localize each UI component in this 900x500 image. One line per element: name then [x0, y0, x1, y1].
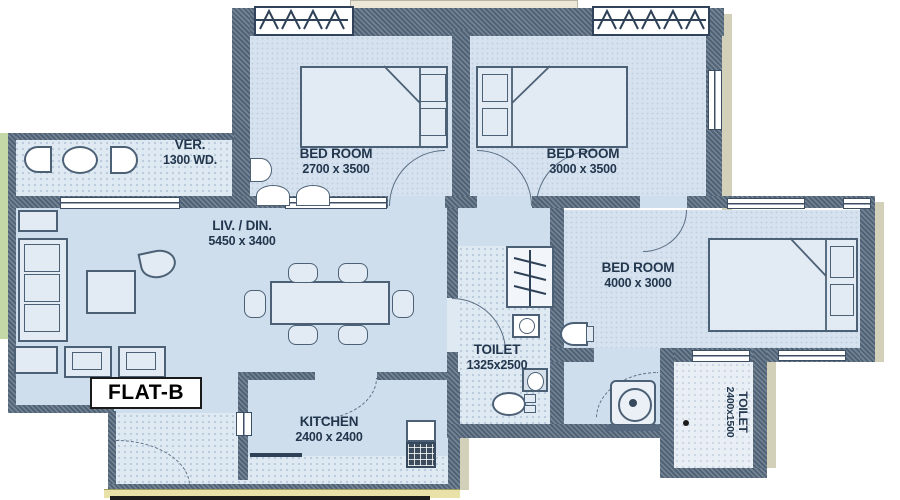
kitchen-sink-icon	[406, 420, 436, 442]
planter-icon	[24, 146, 52, 173]
sofa-cushion	[24, 304, 60, 332]
window-icon	[60, 197, 180, 209]
sofa-cushion	[24, 244, 60, 272]
wall-shadow	[767, 356, 776, 468]
room-label-bedroom-2: BED ROOM 3000 x 3500	[524, 146, 642, 177]
washing-machine-stand	[606, 425, 660, 431]
room-name: LIV. / DIN.	[186, 218, 298, 234]
washing-machine-hub	[629, 399, 637, 407]
room-label-living-dining: LIV. / DIN. 5450 x 3400	[186, 218, 298, 249]
room-label-bedroom-3: BED ROOM 4000 x 3000	[578, 260, 698, 291]
wall	[860, 196, 875, 362]
room-dims: 2400x1500	[723, 360, 735, 464]
wash-basin-icon	[296, 185, 330, 206]
wall	[660, 348, 674, 478]
door-opening	[594, 348, 660, 362]
room-label-toilet-2: TOILET 2400x1500	[694, 360, 750, 464]
room-dims: 4000 x 3000	[578, 276, 698, 291]
room-label-verandah: VER. 1300 WD.	[148, 137, 232, 168]
wash-basin-icon	[492, 392, 526, 416]
side-table-icon	[86, 270, 136, 314]
floor-plan: VER. 1300 WD. BED ROOM 2700 x 3500 BED R…	[0, 0, 900, 500]
room-name: KITCHEN	[268, 414, 390, 430]
chair-icon	[288, 325, 318, 345]
wall	[232, 8, 250, 208]
room-dims: 5450 x 3400	[186, 234, 298, 249]
planter-icon	[110, 146, 138, 174]
room-label-kitchen: KITCHEN 2400 x 2400	[268, 414, 390, 445]
wash-basin-icon	[560, 322, 588, 346]
wall	[660, 468, 767, 478]
pillow-icon	[420, 74, 446, 102]
shower-icon	[506, 246, 554, 308]
casement-window-icon	[592, 6, 710, 36]
room-dims: 3000 x 3500	[524, 162, 642, 177]
tap-icon	[524, 405, 536, 413]
wall	[753, 348, 767, 478]
seat-icon	[14, 346, 58, 374]
wall-shadow	[460, 430, 469, 490]
room-name: TOILET	[444, 342, 550, 358]
room-dims: 2700 x 3500	[278, 162, 394, 177]
armchair-cushion	[126, 352, 156, 370]
window-icon	[708, 70, 722, 130]
window-icon	[778, 350, 846, 361]
wall-shadow	[875, 202, 884, 362]
wall	[550, 348, 594, 362]
room-dims: 2400 x 2400	[268, 430, 390, 445]
planter-icon	[62, 146, 98, 174]
basin-bowl	[519, 318, 535, 334]
wall	[452, 30, 470, 208]
room-label-toilet-1: TOILET 1325x2500	[444, 342, 550, 373]
pillow-icon	[830, 246, 854, 278]
room-name: TOILET	[736, 360, 750, 464]
room-dims: 1325x2500	[444, 358, 550, 373]
window-icon	[843, 198, 871, 209]
wall	[550, 208, 564, 424]
chair-icon	[288, 263, 318, 283]
wall-shadow	[722, 14, 732, 210]
basin-mount	[586, 326, 594, 342]
casement-window-icon	[254, 6, 354, 36]
wash-basin-icon	[256, 185, 290, 206]
sofa-cushion	[24, 274, 60, 302]
room-name: BED ROOM	[578, 260, 698, 276]
kitchen-sink-grid	[406, 442, 436, 468]
kitchen-platform	[250, 453, 302, 457]
door-opening	[640, 196, 687, 208]
wc-bowl	[527, 372, 544, 391]
window-icon	[236, 412, 252, 436]
tap-icon	[524, 394, 536, 403]
drain-point	[683, 420, 689, 426]
pillow-icon	[830, 284, 854, 316]
wash-basin-icon	[250, 158, 272, 182]
chair-icon	[244, 290, 266, 318]
chair-icon	[338, 325, 368, 345]
room-label-bedroom-1: BED ROOM 2700 x 3500	[278, 146, 394, 177]
armchair-cushion	[72, 352, 102, 370]
chair-icon	[392, 290, 414, 318]
flat-label: FLAT-B	[90, 377, 202, 409]
room-dims: 1300 WD.	[148, 153, 232, 168]
wall	[108, 411, 116, 493]
corridor-floor	[458, 208, 552, 246]
seat-icon	[18, 210, 58, 232]
dining-table-icon	[270, 281, 390, 325]
chair-icon	[338, 263, 368, 283]
bottom-bar	[110, 496, 430, 500]
window-icon	[727, 198, 805, 209]
pillow-icon	[420, 108, 446, 136]
pillow-icon	[482, 74, 508, 102]
room-name: VER.	[148, 137, 232, 153]
pillow-icon	[482, 108, 508, 136]
room-name: BED ROOM	[524, 146, 642, 162]
room-name: BED ROOM	[278, 146, 394, 162]
